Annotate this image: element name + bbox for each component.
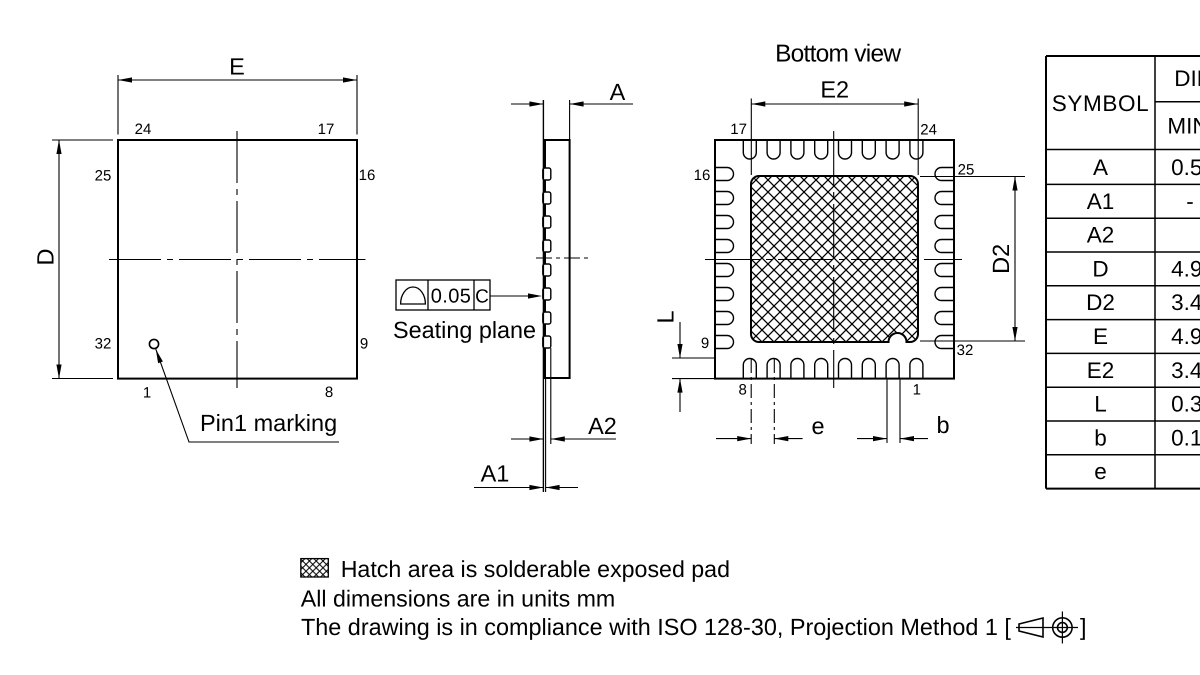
svg-text:Bottom view: Bottom view	[775, 41, 901, 68]
svg-text:]: ]	[1080, 614, 1087, 640]
svg-text:E2: E2	[820, 77, 849, 103]
svg-text:A2: A2	[588, 413, 617, 439]
svg-text:A1: A1	[481, 461, 510, 487]
svg-text:1: 1	[913, 382, 921, 399]
svg-text:A1: A1	[1087, 189, 1115, 214]
svg-text:8: 8	[325, 384, 333, 401]
svg-text:25: 25	[95, 168, 112, 185]
svg-text:17: 17	[730, 121, 747, 138]
svg-text:-: -	[1186, 189, 1194, 214]
svg-text:D2: D2	[988, 244, 1014, 274]
svg-text:L: L	[653, 310, 679, 323]
svg-text:e: e	[1094, 459, 1107, 484]
svg-text:L: L	[1094, 392, 1107, 417]
svg-text:16: 16	[694, 167, 711, 184]
svg-text:A: A	[1093, 155, 1108, 180]
svg-text:Hatch area is solderable expos: Hatch area is solderable exposed pad	[341, 556, 730, 582]
svg-text:4.90: 4.90	[1171, 256, 1200, 281]
svg-text:A2: A2	[1087, 223, 1115, 248]
svg-text:0.05: 0.05	[431, 286, 472, 308]
svg-text:32: 32	[95, 336, 112, 353]
svg-text:32: 32	[957, 342, 974, 359]
svg-text:0.50: 0.50	[1171, 155, 1200, 180]
svg-text:E: E	[1093, 324, 1108, 349]
svg-text:E2: E2	[1087, 358, 1115, 383]
svg-text:17: 17	[318, 121, 335, 138]
svg-text:e: e	[811, 413, 824, 439]
svg-text:D: D	[33, 249, 59, 266]
svg-text:The drawing is in compliance w: The drawing is in compliance with ISO 12…	[301, 614, 1011, 640]
svg-text:E: E	[229, 54, 245, 80]
svg-text:Seating plane: Seating plane	[393, 317, 536, 343]
svg-text:D2: D2	[1086, 290, 1115, 315]
svg-text:D: D	[1092, 256, 1108, 281]
svg-text:8: 8	[739, 382, 747, 399]
svg-text:1: 1	[143, 385, 151, 402]
svg-text:3.40: 3.40	[1171, 290, 1200, 315]
svg-text:b: b	[1094, 425, 1107, 450]
svg-text:24: 24	[920, 121, 937, 138]
svg-text:A: A	[610, 79, 626, 105]
svg-text:16: 16	[359, 167, 376, 184]
svg-text:9: 9	[701, 335, 709, 352]
svg-text:25: 25	[958, 162, 975, 179]
svg-text:b: b	[936, 412, 949, 438]
svg-text:9: 9	[360, 336, 368, 353]
svg-text:4.90: 4.90	[1171, 324, 1200, 349]
svg-text:DIMENSION: DIMENSION	[1174, 66, 1200, 91]
svg-text:Pin1 marking: Pin1 marking	[200, 410, 337, 436]
svg-text:SYMBOL: SYMBOL	[1052, 91, 1149, 116]
svg-text:0.18: 0.18	[1171, 425, 1200, 450]
svg-text:C: C	[475, 287, 489, 308]
svg-text:0.30: 0.30	[1171, 392, 1200, 417]
svg-text:24: 24	[135, 121, 152, 138]
svg-text:All dimensions are in units mm: All dimensions are in units mm	[301, 586, 615, 612]
svg-text:3.40: 3.40	[1171, 358, 1200, 383]
svg-text:MIN: MIN	[1167, 114, 1200, 139]
